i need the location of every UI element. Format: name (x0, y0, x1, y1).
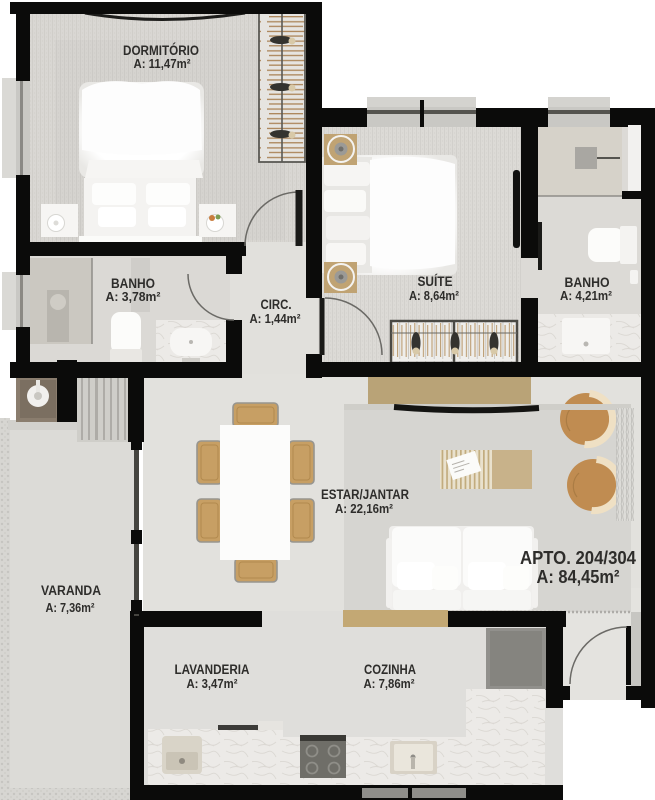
svg-text:A: 8,64m²: A: 8,64m² (409, 288, 460, 303)
svg-text:COZINHA: COZINHA (364, 662, 416, 677)
svg-text:LAVANDERIA: LAVANDERIA (175, 662, 250, 677)
svg-text:ESTAR/JANTAR: ESTAR/JANTAR (321, 487, 409, 502)
svg-text:A: 3,47m²: A: 3,47m² (187, 676, 239, 691)
svg-text:A: 22,16m²: A: 22,16m² (335, 501, 394, 516)
svg-text:A: 7,36m²: A: 7,36m² (46, 600, 96, 615)
svg-text:A: 84,45m²: A: 84,45m² (537, 566, 620, 587)
svg-text:A: 3,78m²: A: 3,78m² (106, 289, 162, 304)
svg-text:CIRC.: CIRC. (261, 297, 292, 312)
svg-text:A: 1,44m²: A: 1,44m² (250, 311, 302, 326)
svg-text:SUÍTE: SUÍTE (418, 274, 453, 289)
svg-text:APTO. 204/304: APTO. 204/304 (520, 547, 637, 568)
svg-text:VARANDA: VARANDA (41, 583, 101, 598)
svg-text:A: 11,47m²: A: 11,47m² (134, 56, 192, 71)
svg-text:A: 7,86m²: A: 7,86m² (364, 676, 416, 691)
svg-text:A: 4,21m²: A: 4,21m² (560, 288, 613, 303)
